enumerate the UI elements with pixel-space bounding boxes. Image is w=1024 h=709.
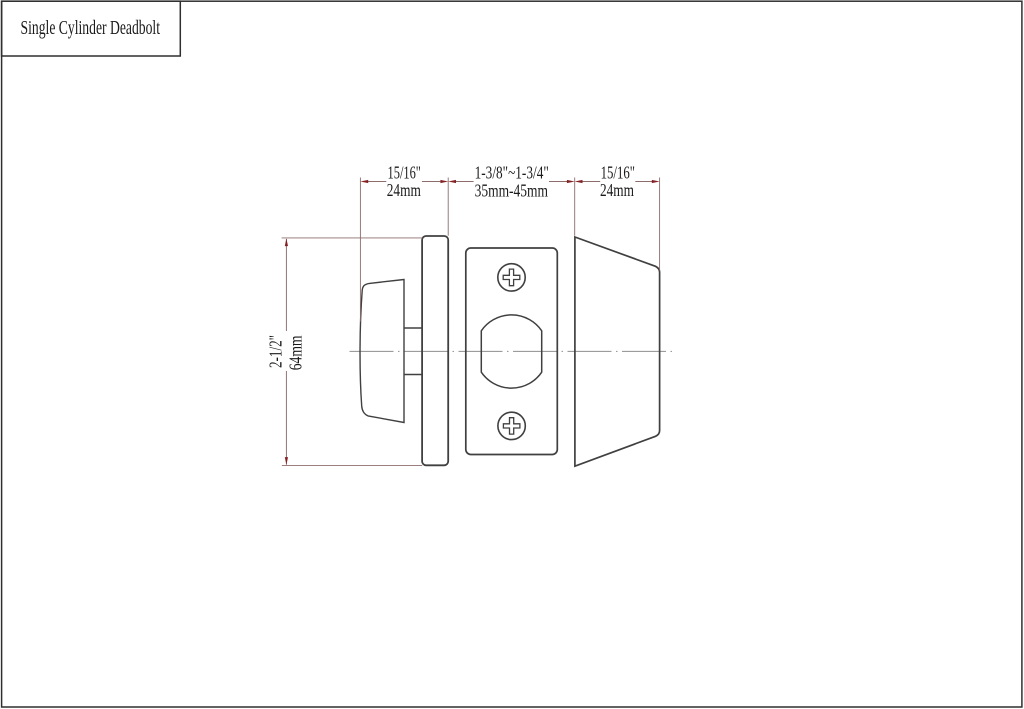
svg-text:2-1/2": 2-1/2" <box>265 335 285 368</box>
svg-text:Single Cylinder Deadbolt: Single Cylinder Deadbolt <box>21 18 161 39</box>
svg-text:24mm: 24mm <box>600 180 634 200</box>
svg-text:64mm: 64mm <box>286 336 306 371</box>
svg-text:35mm-45mm: 35mm-45mm <box>475 180 548 200</box>
svg-text:24mm: 24mm <box>387 180 421 200</box>
